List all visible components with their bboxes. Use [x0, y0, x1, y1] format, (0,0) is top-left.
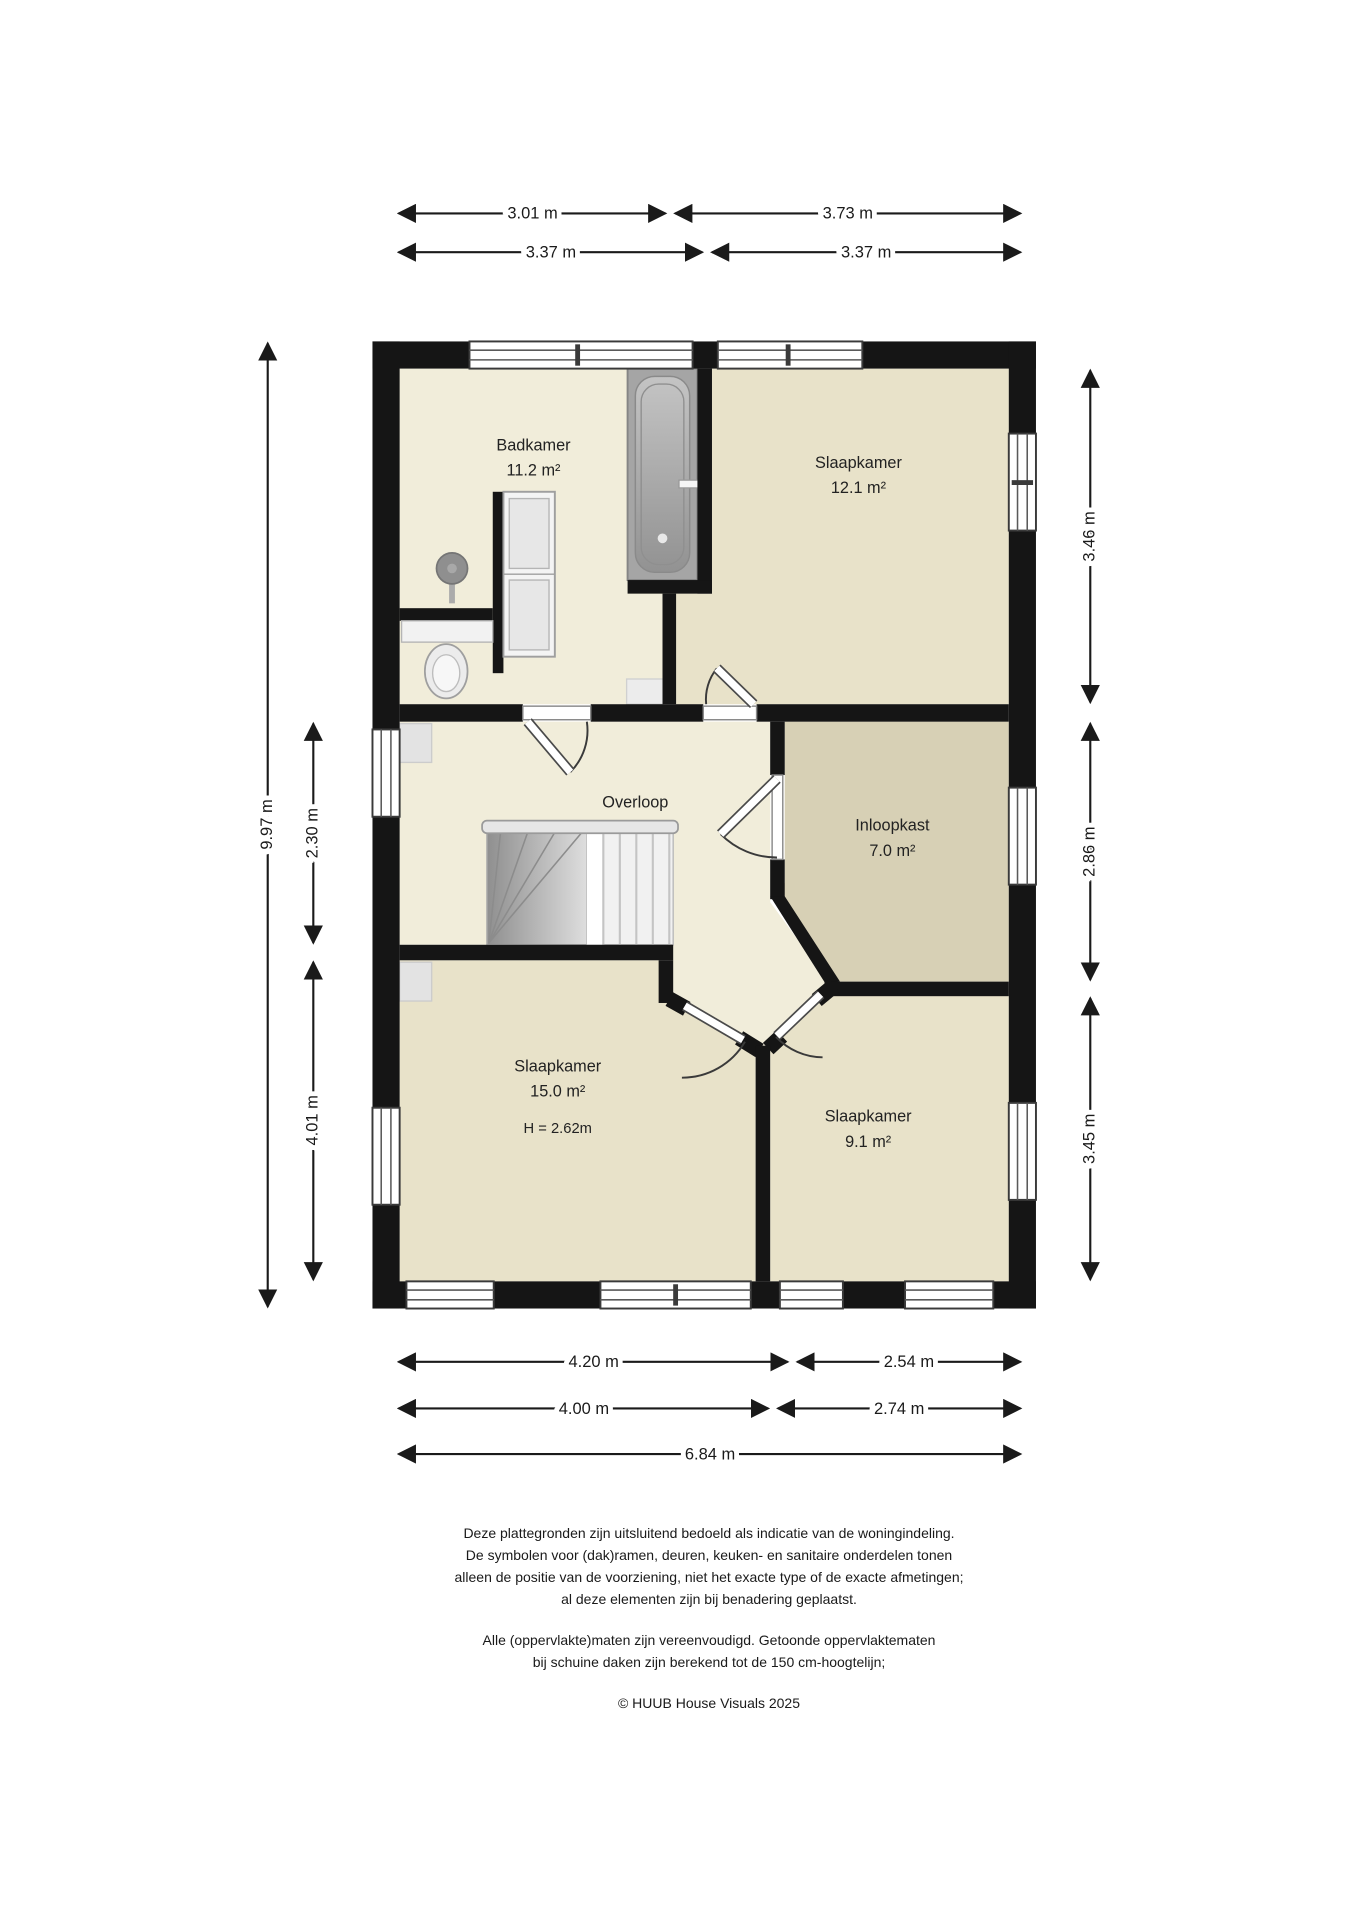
label-slaapkamer-12: Slaapkamer — [815, 454, 902, 472]
room-slaapkamer-12-floor — [676, 369, 1009, 705]
radiator-overloop — [400, 724, 432, 763]
disclaimer-line: al deze elementen zijn bij benadering ge… — [60, 1588, 1358, 1610]
label-inloopkast: Inloopkast — [855, 817, 930, 835]
label-badkamer: Badkamer — [496, 436, 571, 454]
dim-bottom1-left: 4.20 m — [568, 1353, 618, 1371]
dim-right-mid: 2.86 m — [1081, 826, 1099, 876]
window-right-slaapkamer12 — [1009, 434, 1036, 531]
bathtub-drain — [658, 533, 668, 543]
toilet-stub-wall — [400, 608, 493, 621]
dim-bottom2-left: 4.00 m — [559, 1400, 609, 1418]
stairs-highlight — [587, 832, 603, 945]
dim-top1-right: 3.73 m — [823, 205, 873, 223]
wall-bedroom-divider — [756, 1046, 771, 1282]
radiator-slaapkamer-15 — [400, 962, 432, 1001]
measurement-note-text: Alle (oppervlakte)maten zijn vereenvoudi… — [60, 1629, 1358, 1673]
copyright-line: © HUUB House Visuals 2025 — [60, 1692, 1358, 1714]
dim-top2-right: 3.37 m — [841, 244, 891, 262]
wall-inloopkast-bottom — [824, 982, 1008, 997]
wall-under-stairs — [400, 945, 674, 961]
window-right-slaapkamer9 — [1009, 1103, 1036, 1200]
window-bottom-4 — [905, 1281, 993, 1308]
dim-left-total: 9.97 m — [258, 799, 276, 849]
staircase — [482, 821, 678, 945]
window-left-slaapkamer15 — [372, 1108, 399, 1205]
copyright-text: © HUUB House Visuals 2025 — [60, 1692, 1358, 1714]
toilet-cistern-shelf — [402, 621, 493, 642]
dim-bottom-total: 6.84 m — [685, 1445, 735, 1463]
toilet — [425, 644, 468, 698]
window-top-bedroom12 — [718, 341, 863, 368]
label-slaapkamer-9-area: 9.1 m² — [845, 1133, 892, 1151]
window-bottom-2 — [600, 1281, 750, 1308]
dim-top1-left: 3.01 m — [507, 205, 557, 223]
wall-main — [400, 704, 523, 721]
disclaimer-line: alleen de positie van de voorziening, ni… — [60, 1566, 1358, 1588]
window-left-overloop — [372, 729, 399, 816]
stairs-rail — [482, 821, 678, 834]
label-badkamer-area: 11.2 m² — [507, 462, 562, 480]
label-inloopkast-area: 7.0 m² — [869, 842, 916, 860]
wall-bath-bedroom — [697, 369, 712, 594]
window-right-inloopkast — [1009, 788, 1036, 885]
dim-right-bottom: 3.45 m — [1081, 1114, 1099, 1164]
floor-plan-page: { "colors": { "floor": "#f1edda", "bedro… — [0, 0, 1358, 1920]
label-slaapkamer-9: Slaapkamer — [825, 1108, 912, 1126]
note-line: bij schuine daken zijn berekend tot de 1… — [60, 1651, 1358, 1673]
disclaimer-line: Deze plattegronden zijn uitsluitend bedo… — [60, 1522, 1358, 1544]
bathroom-cabinet — [503, 492, 554, 657]
window-top-bathroom — [469, 341, 692, 368]
bathtub-faucet — [679, 480, 700, 488]
window-bottom-3 — [780, 1281, 843, 1308]
label-slaapkamer-15-height: H = 2.62m — [524, 1121, 592, 1137]
disclaimer-text: Deze plattegronden zijn uitsluitend bedo… — [60, 1522, 1358, 1610]
label-slaapkamer-12-area: 12.1 m² — [831, 479, 887, 497]
note-line: Alle (oppervlakte)maten zijn vereenvoudi… — [60, 1629, 1358, 1651]
dim-left-slaapkamer: 4.01 m — [304, 1095, 322, 1145]
disclaimer-line: De symbolen voor (dak)ramen, deuren, keu… — [60, 1544, 1358, 1566]
dim-bottom2-right: 2.74 m — [874, 1400, 924, 1418]
dim-right-top: 3.46 m — [1081, 511, 1099, 561]
dim-left-overloop: 2.30 m — [304, 808, 322, 858]
cabinet-stub-wall — [493, 492, 504, 673]
bathtub — [628, 369, 701, 580]
window-bottom-1 — [406, 1281, 493, 1308]
label-slaapkamer-15-area: 15.0 m² — [530, 1083, 586, 1101]
label-overloop: Overloop — [602, 793, 668, 811]
bathroom-shelf — [627, 679, 664, 704]
dim-bottom1-right: 2.54 m — [884, 1353, 934, 1371]
dim-top2-left: 3.37 m — [526, 244, 576, 262]
label-slaapkamer-15: Slaapkamer — [514, 1057, 601, 1075]
